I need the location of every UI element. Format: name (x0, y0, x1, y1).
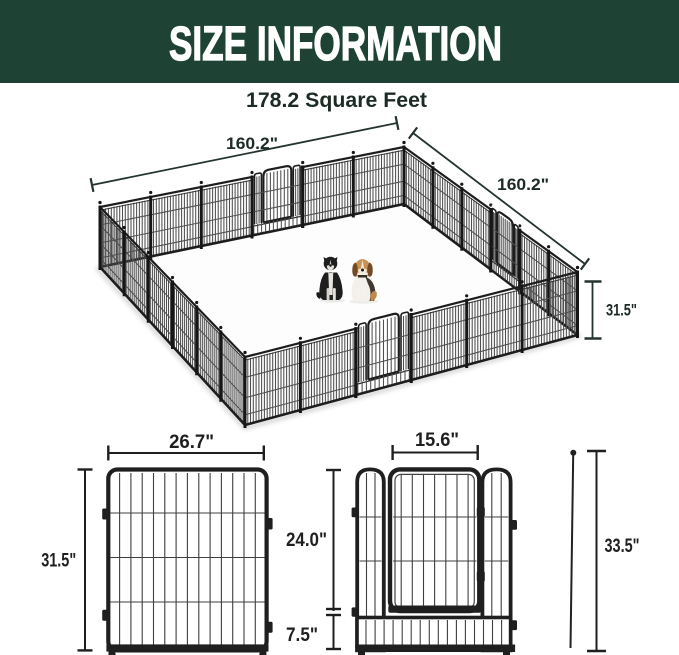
svg-text:31.5": 31.5" (41, 551, 76, 572)
svg-text:26.7": 26.7" (169, 432, 214, 453)
svg-text:160.2": 160.2" (226, 135, 278, 153)
svg-text:24.0": 24.0" (286, 530, 327, 551)
svg-text:178.2 Square Feet: 178.2 Square Feet (246, 89, 427, 112)
svg-text:SIZE INFORMATION: SIZE INFORMATION (169, 18, 502, 71)
svg-text:33.5": 33.5" (605, 536, 640, 557)
svg-text:31.5": 31.5" (606, 302, 637, 320)
svg-text:15.6": 15.6" (415, 430, 459, 451)
svg-text:160.2": 160.2" (497, 176, 549, 194)
svg-text:7.5": 7.5" (286, 625, 318, 646)
